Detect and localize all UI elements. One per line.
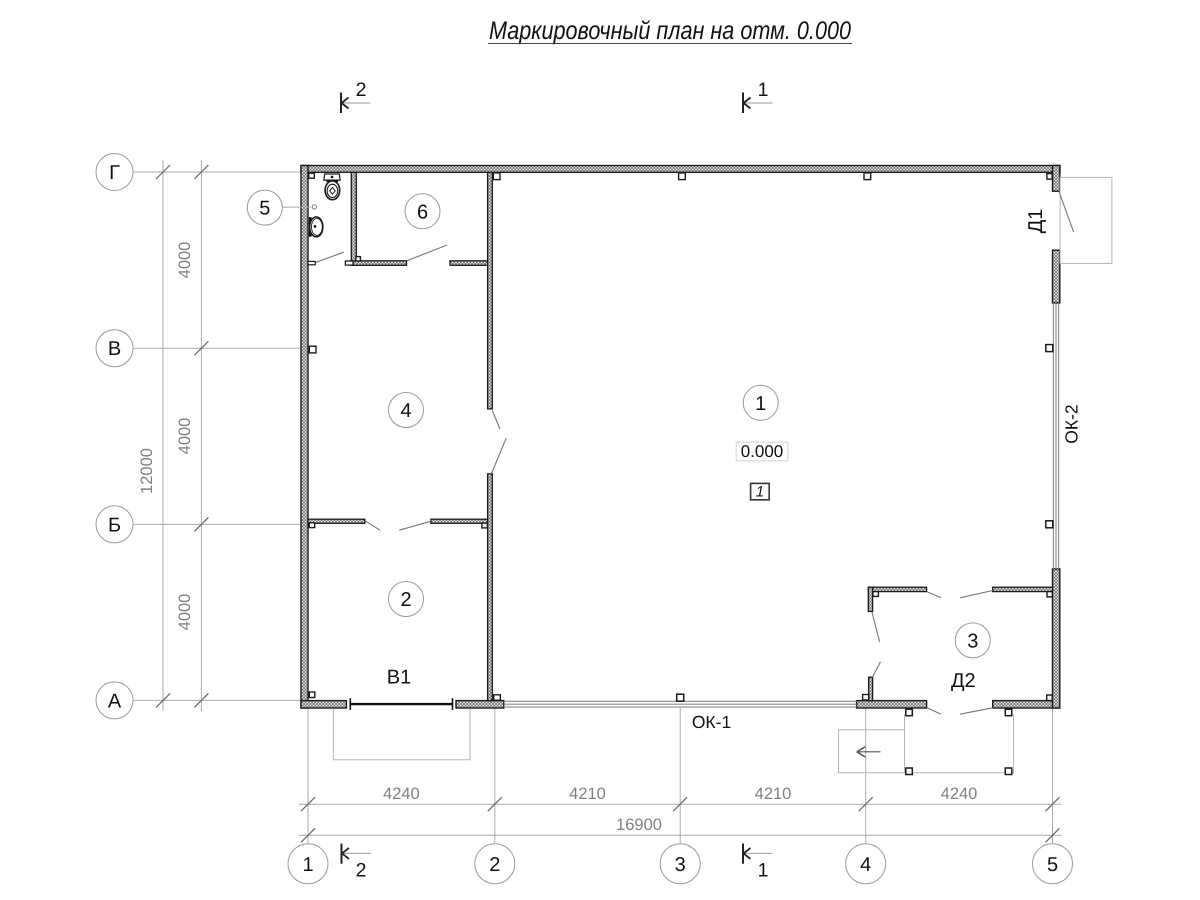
svg-text:3: 3	[967, 630, 978, 652]
svg-text:0.000: 0.000	[741, 442, 784, 461]
svg-text:4240: 4240	[941, 785, 978, 803]
svg-text:4000: 4000	[176, 418, 194, 455]
svg-text:Д2: Д2	[951, 670, 976, 692]
svg-text:4240: 4240	[383, 785, 420, 803]
svg-text:4: 4	[400, 400, 411, 422]
svg-text:2: 2	[489, 854, 500, 876]
svg-text:5: 5	[259, 198, 270, 220]
svg-text:1: 1	[302, 854, 313, 876]
svg-text:1: 1	[756, 484, 764, 501]
svg-text:Маркировочный план на отм. 0.0: Маркировочный план на отм. 0.000	[489, 17, 851, 45]
svg-text:4: 4	[860, 854, 871, 876]
svg-text:Г: Г	[109, 162, 120, 184]
svg-text:12000: 12000	[138, 448, 156, 494]
svg-text:2: 2	[356, 860, 367, 882]
svg-text:1: 1	[755, 393, 766, 415]
svg-text:16900: 16900	[616, 816, 662, 834]
svg-text:5: 5	[1047, 854, 1058, 876]
svg-text:4000: 4000	[176, 594, 194, 631]
svg-text:1: 1	[758, 79, 769, 101]
svg-text:А: А	[108, 690, 122, 712]
svg-text:2: 2	[356, 79, 367, 101]
svg-text:4210: 4210	[755, 785, 792, 803]
svg-text:В: В	[108, 338, 121, 360]
svg-text:4210: 4210	[569, 785, 606, 803]
svg-text:ОК-1: ОК-1	[692, 712, 731, 732]
svg-text:В1: В1	[387, 667, 411, 689]
svg-text:6: 6	[417, 201, 428, 223]
svg-text:Б: Б	[108, 514, 121, 536]
svg-text:Д1: Д1	[1025, 209, 1047, 234]
svg-text:ОК-2: ОК-2	[1061, 404, 1081, 443]
svg-text:1: 1	[758, 860, 769, 882]
svg-text:3: 3	[675, 854, 686, 876]
svg-text:4000: 4000	[176, 242, 194, 279]
svg-text:2: 2	[400, 589, 411, 611]
